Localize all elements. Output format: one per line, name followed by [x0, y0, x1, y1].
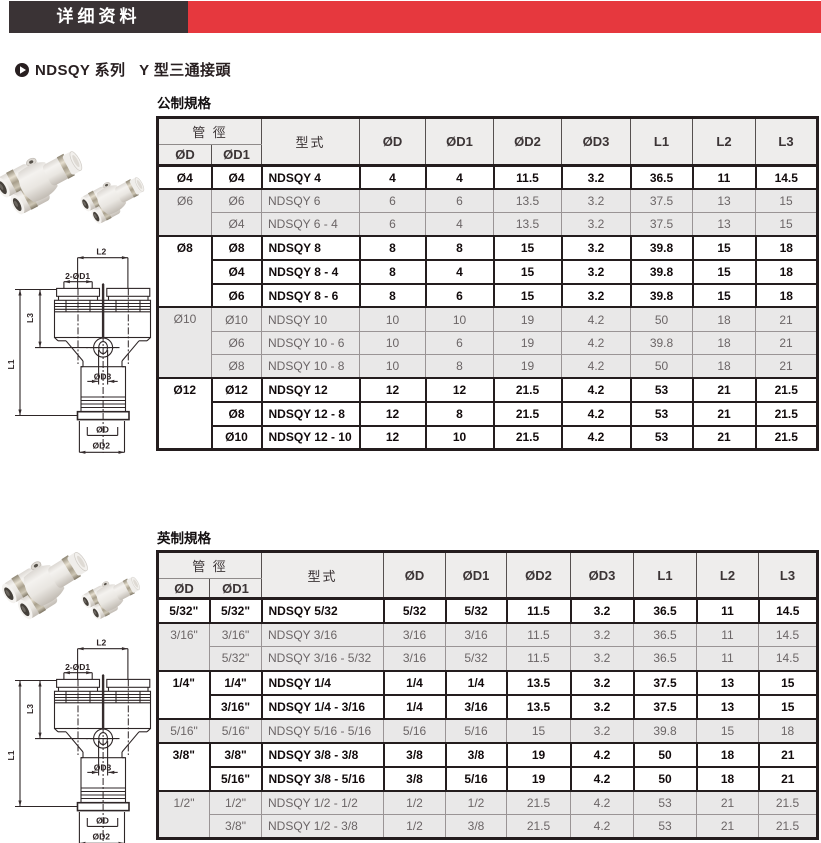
- svg-text:ØD: ØD: [96, 425, 109, 435]
- svg-text:2-ØD1: 2-ØD1: [65, 271, 90, 281]
- svg-text:L2: L2: [96, 247, 106, 257]
- svg-text:L1: L1: [6, 359, 16, 369]
- svg-text:L3: L3: [25, 313, 35, 323]
- svg-text:ØD3: ØD3: [94, 372, 112, 382]
- svg-text:ØD2: ØD2: [93, 441, 111, 451]
